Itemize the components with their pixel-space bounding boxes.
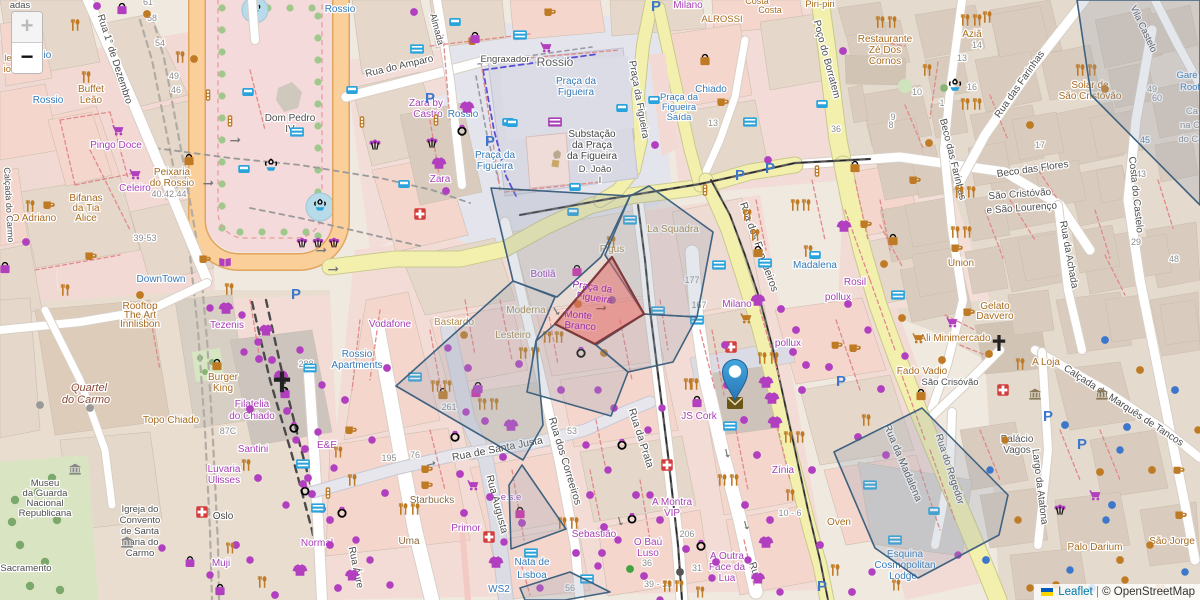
svg-text:54: 54 [155, 38, 165, 48]
svg-text:13: 13 [708, 118, 718, 128]
svg-text:Uma: Uma [398, 536, 420, 547]
svg-text:195: 195 [381, 453, 396, 463]
svg-text:de Santa: de Santa [121, 526, 160, 537]
svg-text:Costa: Costa [758, 5, 782, 15]
svg-text:Branco: Branco [564, 320, 597, 333]
svg-text:Piri-piri: Piri-piri [805, 0, 835, 10]
svg-text:Peixaria: Peixaria [154, 167, 191, 178]
svg-text:I: I [599, 175, 602, 186]
svg-text:87C: 87C [220, 426, 237, 436]
svg-text:Oslo: Oslo [213, 511, 234, 522]
svg-text:Carmo: Carmo [126, 548, 155, 559]
svg-text:Convento: Convento [120, 515, 161, 526]
svg-text:Lisboa: Lisboa [517, 570, 547, 581]
svg-text:São Crisóvão: São Crisóvão [921, 377, 978, 388]
svg-text:Primor: Primor [451, 523, 481, 534]
svg-text:Chiado: Chiado [695, 84, 727, 95]
svg-text:A Loja: A Loja [1032, 357, 1060, 368]
svg-text:Nata de: Nata de [514, 557, 549, 568]
svg-text:pollux: pollux [775, 338, 801, 349]
svg-text:61: 61 [143, 0, 153, 7]
svg-text:76: 76 [410, 450, 420, 460]
svg-text:Rossio: Rossio [342, 349, 373, 360]
svg-text:Aziã: Aziã [962, 29, 982, 40]
svg-text:Quartel: Quartel [71, 382, 108, 394]
svg-text:36: 36 [831, 124, 841, 134]
svg-text:São Jorge: São Jorge [1149, 536, 1195, 547]
svg-text:Buffet: Buffet [78, 84, 104, 95]
svg-text:1: 1 [939, 98, 944, 108]
svg-text:40.42.44: 40.42.44 [151, 189, 186, 199]
svg-text:39-53: 39-53 [133, 233, 156, 243]
svg-text:10: 10 [912, 87, 922, 97]
svg-text:16: 16 [967, 82, 977, 92]
svg-text:do Chiado: do Chiado [229, 411, 275, 422]
svg-text:Saída: Saída [667, 112, 693, 123]
svg-text:Innlisbon: Innlisbon [120, 319, 160, 330]
svg-text:Leão: Leão [80, 95, 103, 106]
svg-text:Celeiro: Celeiro [119, 183, 151, 194]
svg-text:D. João: D. João [579, 164, 612, 175]
svg-text:Praça da: Praça da [556, 76, 596, 87]
svg-text:10 - 6: 10 - 6 [778, 508, 801, 518]
svg-text:Apartments: Apartments [331, 360, 382, 371]
svg-text:do Carmo: do Carmo [62, 394, 110, 406]
svg-text:48: 48 [1169, 254, 1179, 264]
svg-text:Castro: Castro [413, 109, 443, 120]
svg-text:da Praça: da Praça [572, 140, 612, 151]
svg-text:WS2: WS2 [488, 584, 510, 595]
svg-text:da Figueira: da Figueira [567, 151, 617, 162]
svg-text:Union: Union [948, 258, 974, 269]
svg-text:Rossio: Rossio [33, 95, 64, 106]
svg-text:Sacramento: Sacramento [0, 563, 51, 574]
svg-text:Praça da: Praça da [475, 150, 515, 161]
svg-text:Milano: Milano [722, 299, 752, 310]
svg-text:13: 13 [957, 53, 967, 63]
svg-text:ALROSSI: ALROSSI [701, 14, 742, 25]
svg-text:Tezenis: Tezenis [210, 320, 244, 331]
svg-text:Fado Vadio: Fado Vadio [897, 366, 948, 377]
svg-text:Pingo Doce: Pingo Doce [90, 140, 142, 151]
svg-text:8: 8 [888, 120, 893, 130]
svg-text:Republicana: Republicana [19, 508, 73, 519]
svg-text:Rossio: Rossio [537, 55, 574, 69]
svg-text:46: 46 [171, 85, 181, 95]
svg-text:53: 53 [567, 426, 577, 436]
svg-text:14: 14 [972, 40, 982, 50]
svg-text:31: 31 [692, 563, 702, 573]
svg-text:do Rossio: do Rossio [150, 178, 195, 189]
svg-text:Restaurante: Restaurante [858, 34, 913, 45]
svg-text:Santini: Santini [238, 444, 269, 455]
svg-text:36: 36 [642, 558, 652, 568]
svg-text:Figueira: Figueira [558, 87, 595, 98]
svg-text:Cornos: Cornos [869, 56, 901, 67]
svg-text:VIP: VIP [664, 508, 680, 519]
svg-text:Topo Chiado: Topo Chiado [143, 415, 200, 426]
svg-text:29: 29 [1131, 237, 1141, 247]
svg-text:O Adriano: O Adriano [12, 213, 57, 224]
svg-text:Igreja do: Igreja do [122, 504, 159, 515]
svg-text:Muji: Muji [212, 558, 230, 569]
svg-text:Luvaria: Luvaria [208, 464, 241, 475]
svg-text:Palo Darium: Palo Darium [1067, 542, 1122, 553]
svg-text:49: 49 [169, 71, 179, 81]
svg-text:DownTown: DownTown [137, 274, 186, 285]
svg-text:Substação: Substação [568, 129, 616, 140]
svg-text:O Baú: O Baú [634, 537, 662, 548]
svg-text:A Montra: A Montra [652, 497, 692, 508]
svg-text:Vodafone: Vodafone [369, 319, 412, 330]
svg-text:JS Cork: JS Cork [681, 411, 718, 422]
svg-text:Zé Dos: Zé Dos [869, 45, 901, 56]
svg-text:17: 17 [1035, 140, 1045, 150]
svg-text:Ali Minimercado: Ali Minimercado [919, 333, 991, 344]
svg-text:Davvero: Davvero [976, 311, 1014, 322]
svg-text:Lua: Lua [719, 573, 736, 584]
svg-text:Zara: Zara [430, 174, 451, 185]
svg-text:Zínia: Zínia [772, 465, 795, 476]
svg-text:adas: adas [10, 0, 31, 11]
svg-text:Vagos: Vagos [1003, 445, 1031, 456]
svg-text:Figueira: Figueira [477, 161, 514, 172]
svg-text:Dom Pedro: Dom Pedro [265, 113, 316, 124]
svg-text:Rosil: Rosil [844, 277, 866, 288]
svg-text:Alice: Alice [75, 213, 97, 224]
svg-text:Milano: Milano [673, 0, 703, 11]
svg-text:Madalena: Madalena [793, 260, 837, 271]
svg-text:King: King [213, 383, 233, 394]
svg-text:Ulisses: Ulisses [208, 475, 240, 486]
svg-text:Engraxador: Engraxador [480, 54, 529, 65]
svg-text:Rossio: Rossio [325, 4, 356, 15]
svg-text:Sebastião: Sebastião [572, 529, 617, 540]
svg-text:Burger: Burger [208, 372, 239, 383]
svg-text:Oven: Oven [827, 517, 851, 528]
svg-text:206: 206 [679, 529, 694, 539]
